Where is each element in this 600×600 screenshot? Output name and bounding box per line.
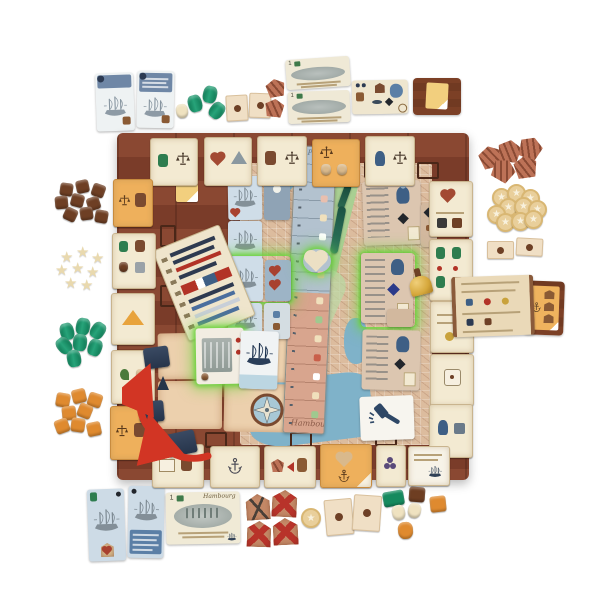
bell-dome xyxy=(408,274,434,298)
border-tile-orange-scales xyxy=(312,139,360,187)
mountain-icon xyxy=(231,151,247,164)
brown-sack xyxy=(75,179,90,194)
tile-icon xyxy=(135,262,145,273)
star-token: ★ xyxy=(80,278,93,293)
cargo-icon xyxy=(123,116,131,124)
building-card-group-1 xyxy=(362,180,422,246)
paper-icon xyxy=(407,226,419,240)
seal-domino xyxy=(487,241,514,259)
text-line xyxy=(142,86,168,88)
grape-dot xyxy=(390,463,396,469)
chevron-rows xyxy=(365,259,385,317)
text-line xyxy=(178,532,228,534)
text-line xyxy=(133,549,153,551)
heart-icon xyxy=(270,281,280,291)
navy-ship-icon xyxy=(243,336,276,373)
barrel-icon xyxy=(452,247,461,259)
text-line xyxy=(133,539,157,541)
note-value: 1 xyxy=(170,495,174,502)
pip xyxy=(273,323,280,330)
wax-seal xyxy=(257,102,264,109)
crest-token-x xyxy=(272,517,298,545)
diamond-icon xyxy=(387,283,400,296)
wax-seal xyxy=(363,509,372,518)
text-line xyxy=(133,544,159,546)
text-line xyxy=(182,536,224,538)
barrel-icon xyxy=(158,154,168,167)
star-coin: ★ xyxy=(524,210,543,229)
heart-token-highlight xyxy=(303,249,331,273)
seal-tile xyxy=(352,494,382,532)
ship-card-top-1 xyxy=(95,72,135,131)
barrel-icon xyxy=(436,276,445,288)
orange-sack-token xyxy=(397,521,413,539)
track-space-icon xyxy=(319,233,326,240)
note-card-1: 1 xyxy=(285,56,351,90)
timber-bundle-token xyxy=(516,133,546,162)
crest-icon xyxy=(375,83,385,93)
border-tile-coat-scales xyxy=(257,136,307,186)
ship-icon xyxy=(131,494,162,529)
red-mark xyxy=(453,266,458,271)
spade-icon xyxy=(337,453,351,467)
barrel-icon xyxy=(297,458,307,472)
crest-token-x xyxy=(271,489,297,517)
brown-sack xyxy=(79,206,94,221)
highlighted-building-card xyxy=(361,253,415,327)
heart-icon xyxy=(270,267,280,277)
coat-icon xyxy=(135,240,145,252)
brown-sack xyxy=(70,193,86,209)
brown-tile-piece xyxy=(408,486,425,502)
cream-sack-token xyxy=(175,103,189,119)
star-token: ★ xyxy=(71,261,84,276)
diamond-icon xyxy=(385,98,393,106)
compass-rose xyxy=(250,393,284,427)
track-space-icon xyxy=(315,316,322,323)
ship-icon xyxy=(90,500,122,541)
pip xyxy=(362,83,366,87)
ship-icon xyxy=(231,225,259,257)
note-value: 1 xyxy=(288,61,292,67)
hambourg-note-card: 1 Hambourg xyxy=(166,491,241,544)
reference-card-top xyxy=(352,80,409,115)
mini-icon xyxy=(502,297,509,304)
stamp-icon xyxy=(177,495,184,501)
crest-token-x xyxy=(247,521,272,548)
boardgame-photo: 1 1 ★ ★ ★ xyxy=(0,0,600,600)
diamond-icon xyxy=(398,213,409,224)
coat-icon xyxy=(265,151,276,165)
card-back-brown xyxy=(413,78,461,115)
star-coin: ★ xyxy=(301,508,321,528)
building-card-foot xyxy=(387,309,413,327)
border-tile-figure-scales xyxy=(365,136,415,186)
ship-card-bottom-1 xyxy=(87,488,126,561)
sack-icon xyxy=(119,262,128,272)
gavel-icon xyxy=(366,401,407,432)
paper-icon xyxy=(404,372,416,386)
pip xyxy=(356,83,360,87)
note-value: 1 xyxy=(290,93,294,99)
auction-gavel-card xyxy=(359,395,415,441)
wax-seal xyxy=(234,105,241,112)
barrel-icon xyxy=(90,492,97,501)
mini-icon xyxy=(466,319,473,326)
mini-icon xyxy=(484,318,491,325)
ship-silhouette-card xyxy=(239,330,279,389)
movement-arrows xyxy=(122,340,232,468)
seal-tile xyxy=(225,94,248,121)
water-band xyxy=(239,374,277,389)
folded-note xyxy=(176,184,198,202)
diamond-icon xyxy=(394,359,405,370)
text-line xyxy=(463,329,513,332)
border-tile-grapes xyxy=(376,445,406,487)
pip xyxy=(273,311,280,318)
star-glyph: ★ xyxy=(519,201,528,212)
cheese-icon xyxy=(122,310,144,325)
cargo-icon xyxy=(162,115,170,123)
text-line xyxy=(414,454,442,456)
cream-sack-token xyxy=(407,502,422,519)
wax-seal xyxy=(526,244,533,251)
star-token: ★ xyxy=(64,276,77,291)
seal-domino xyxy=(516,237,544,256)
text-line xyxy=(461,289,515,292)
orange-sack xyxy=(70,417,86,433)
text-line xyxy=(461,281,519,285)
track-space-icon xyxy=(320,214,327,221)
moon-dot xyxy=(273,185,281,193)
green-barrel-token xyxy=(186,93,204,113)
board-ship-half-card-3 xyxy=(265,260,291,301)
builder-figure-icon xyxy=(396,336,409,352)
stamp-icon xyxy=(294,61,300,66)
folded-note xyxy=(425,82,448,109)
heart-icon xyxy=(441,190,454,203)
border-tile-orange-spade-anchor xyxy=(320,444,372,488)
seal-tile xyxy=(323,498,354,536)
teal-barrel xyxy=(86,337,105,358)
scales-icon xyxy=(284,150,300,166)
brown-sack xyxy=(94,209,109,224)
text-line xyxy=(142,78,168,80)
board-ship-card-2 xyxy=(228,221,262,261)
engraving-spires xyxy=(186,508,220,519)
heart-icon xyxy=(231,209,239,217)
text-line xyxy=(133,534,159,536)
wax-seal xyxy=(497,247,504,254)
text-line xyxy=(436,212,464,214)
wax-seal xyxy=(335,513,344,522)
scales-icon xyxy=(118,194,131,207)
star-glyph: ★ xyxy=(501,217,510,228)
track-space-icon xyxy=(312,392,319,399)
wood-icon xyxy=(271,459,284,472)
border-tile-heart-mountain xyxy=(204,137,252,186)
sack-icon xyxy=(321,164,331,175)
skyline-engraving xyxy=(291,65,346,82)
note-script: Hambourg xyxy=(203,492,236,500)
border-tile-ship-stamp xyxy=(408,446,450,486)
red-mark xyxy=(437,266,442,271)
cream-sack-token xyxy=(391,504,407,521)
red-chevron xyxy=(287,462,294,472)
orange-sack xyxy=(86,421,103,438)
tile-icon xyxy=(452,218,462,228)
border-tile-wood-barrel xyxy=(264,446,316,488)
navy-ship-stamp xyxy=(226,531,237,542)
track-space-icon xyxy=(314,354,321,361)
purse-dot xyxy=(450,375,454,379)
building-icon xyxy=(454,423,465,434)
border-tile-cheese xyxy=(111,293,155,345)
chevron-rows xyxy=(366,187,390,238)
sack-icon xyxy=(337,164,347,175)
mini-icon xyxy=(466,299,473,306)
building-card-group-3 xyxy=(361,329,420,390)
orange-tile-piece xyxy=(429,495,447,513)
text-line xyxy=(414,459,438,461)
card-badge xyxy=(116,491,121,496)
anchor-icon xyxy=(337,469,351,483)
figure-icon xyxy=(375,151,385,166)
frame-slot xyxy=(417,162,439,179)
track-space-icon xyxy=(316,297,323,304)
ship-card-top-2 xyxy=(137,71,175,129)
wood-icon xyxy=(356,92,364,101)
scales-icon xyxy=(175,151,191,167)
scales-icon xyxy=(319,145,334,160)
mini-icon xyxy=(484,298,491,305)
navy-ship-icon xyxy=(427,464,443,480)
border-tile-orange-coat xyxy=(113,179,153,227)
note-card-2: 1 xyxy=(287,90,350,124)
builder-figure-icon xyxy=(391,259,404,275)
text-line xyxy=(301,119,337,122)
card-badge xyxy=(139,73,146,80)
border-tile-heart-list xyxy=(429,181,473,237)
crest-token-tools xyxy=(245,493,271,521)
track-space-icon xyxy=(311,411,318,418)
border-tile-goods-prices xyxy=(112,233,156,289)
timber-bundle-token xyxy=(497,139,523,164)
barrel-icon xyxy=(119,241,128,252)
teal-barrel xyxy=(66,349,83,368)
builder-figure-icon xyxy=(396,186,410,203)
skyline-engraving xyxy=(292,99,346,115)
track-space-icon xyxy=(313,373,320,380)
fish-icon xyxy=(372,100,382,104)
border-tile-barrel-scales xyxy=(150,138,198,186)
scales-icon xyxy=(392,150,408,166)
ship-card-bottom-2 xyxy=(127,486,164,559)
track-space-icon xyxy=(314,335,321,342)
reference-scroll xyxy=(451,275,535,338)
heart-icon xyxy=(211,153,224,166)
star-glyph: ★ xyxy=(307,513,316,524)
tile-icon xyxy=(437,218,447,228)
map-shape-icon xyxy=(390,84,403,98)
coat-icon xyxy=(135,193,146,207)
text-line xyxy=(142,82,166,84)
figure-icon xyxy=(438,420,448,435)
stamp-icon xyxy=(297,94,303,99)
text-line xyxy=(462,311,520,315)
teal-barrel xyxy=(87,320,108,342)
border-tile-purse xyxy=(430,354,474,406)
text-band xyxy=(129,530,161,555)
star-token: ★ xyxy=(76,245,89,260)
seal-icon xyxy=(398,104,407,113)
track-space-icon xyxy=(321,195,328,202)
chevron-rows xyxy=(366,336,389,384)
orange-sack xyxy=(71,388,88,405)
heart-token xyxy=(306,252,326,272)
barrel-icon xyxy=(436,247,445,259)
star-glyph: ★ xyxy=(529,214,538,225)
